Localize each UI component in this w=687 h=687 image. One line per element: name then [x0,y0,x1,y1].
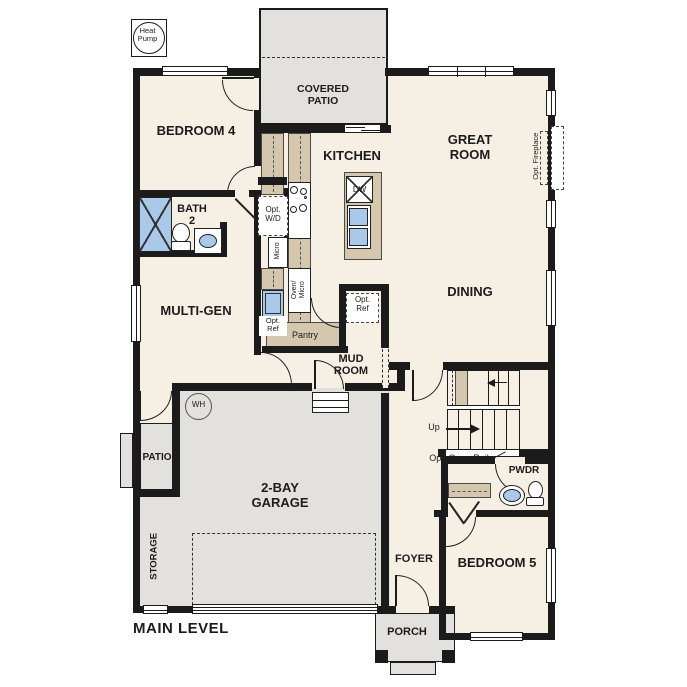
south-wall-c [345,383,405,391]
garage-door [192,604,378,614]
stair-tread [498,370,499,405]
bed4-window [162,66,228,76]
garage-door-clearance [192,533,376,605]
burner [290,206,297,213]
room-label-foyer: FOYER [390,553,438,565]
exterior-wall-bottom-foyer-a [390,606,396,613]
bedroom5-right-window [546,548,556,603]
garage-steps [312,392,349,413]
up-arrow-head [470,424,480,434]
bath2-sink [199,234,217,248]
room-label-kitchen: KITCHEN [312,149,392,164]
kitchenette-counter-upper [261,133,284,195]
room-label-covered-patio: COVERED PATIO [273,84,373,108]
pwdr-sink-basin [503,489,521,502]
stair-tread [506,410,507,449]
burner [300,188,307,195]
pwdr-top-wall-b [525,457,548,464]
label-opt-open-rail: Opt. Open Rail [420,453,498,463]
label-up: Up [424,422,444,432]
island-sink-basin [349,208,368,226]
stair-return-arrow-line [494,382,507,383]
stair-return-arrow [487,379,495,387]
great-room-right-window-1 [546,90,556,116]
up-arrow-line [446,428,471,430]
slider-panel [346,127,365,128]
burner-knob [304,196,307,199]
opt-fireplace-outer [551,126,564,190]
stair-top-wall-b [443,362,548,370]
label-heat-pump: Heat Pump [131,27,164,44]
garage-east-wall [381,393,389,607]
bath2-toilet-tank [171,241,191,251]
nook-east-wall [381,284,389,348]
garage-left-wall [172,388,180,497]
island-sink-basin [349,228,368,246]
kitchen-top-wall-b [381,125,391,133]
mud-garage-door-panel [314,360,316,389]
label-dw: DW [346,186,373,195]
mud-cased-opening [382,349,389,388]
label-micro: Micro [274,237,282,265]
stair-dashed-line [452,370,453,406]
burner [299,204,307,212]
stair-tread [482,410,483,449]
label-wh: WH [185,401,212,410]
bedroom5-floor [446,613,548,633]
bed4-bath-divider [133,190,235,197]
label-opt-ref-mud: Opt. Ref [347,296,378,314]
bed4-east-wall-a [254,68,261,78]
room-label-porch: PORCH [383,626,431,638]
step-line [313,400,348,401]
label-opt-fireplace: Opt. Fireplace [532,123,540,189]
bedroom5-bottom-window [470,632,523,641]
storage-window [143,605,168,614]
coat-closet-rod [448,483,491,498]
stair-tread [494,410,495,449]
sliding-glass-door [344,124,381,133]
opt-fireplace-inner [540,131,548,185]
room-label-storage: STORAGE [150,528,161,584]
label-opt-wd: Opt. W/D [258,206,288,224]
room-label-garage: 2-BAY GARAGE [235,481,325,510]
room-label-patio: PATIO [135,452,179,463]
floor-plan: BEDROOM 4 BATH 2 MULTI-GEN KITCHEN COVER… [0,0,687,687]
front-door-panel [395,575,397,606]
great-room-right-window-2 [546,200,556,228]
pwdr-bottom-wall-b [476,510,555,517]
kitchenette-fridge [262,290,284,317]
bed4-door-panel [222,77,254,79]
patio-door-panel [139,391,141,421]
porch-step [390,662,436,675]
south-wall-a [133,383,140,391]
room-label-pwdr: PWDR [500,465,548,476]
kitchenette-wall-a [258,177,287,185]
stair-tread [488,370,489,405]
covered-patio-dashed-line [262,57,385,58]
stair-top-wall-a [389,362,410,370]
room-label-bedroom5: BEDROOM 5 [449,556,545,571]
room-label-bedroom4: BEDROOM 4 [136,124,256,139]
kitchen-top-wall-a [257,125,344,133]
label-oven-micro: Oven/ Micro [291,274,307,306]
understair-door-panel [412,370,414,401]
label-opt-ref-kitchen: Opt. Ref [259,317,287,334]
burner [290,186,298,194]
patio-step [120,433,133,488]
plan-title: MAIN LEVEL [133,621,273,638]
great-room-top-window [428,66,514,76]
room-label-dining: DINING [430,285,510,300]
porch-post-right [442,650,455,663]
room-label-pantry: Pantry [280,330,330,340]
pantry-bottom-wall [262,346,348,353]
room-label-mud-room: MUD ROOM [321,353,381,378]
rail-east-wall [518,449,548,457]
kitchenette-counter-lower [261,268,284,290]
step-line [313,407,348,408]
room-label-bath2: BATH 2 [162,203,222,228]
window-mullion [485,67,486,77]
room-label-great-room: GREAT ROOM [430,133,510,162]
room-label-multigen: MULTI-GEN [136,304,256,319]
window-mullion [457,67,458,77]
slider-panel [361,130,380,131]
stair-tread [508,370,509,405]
porch-post-left [375,650,388,663]
bed5-west-wall [439,510,446,640]
dining-window [546,270,556,326]
fridge-inner-line [265,293,281,314]
pwdr-toilet-tank [526,497,544,506]
